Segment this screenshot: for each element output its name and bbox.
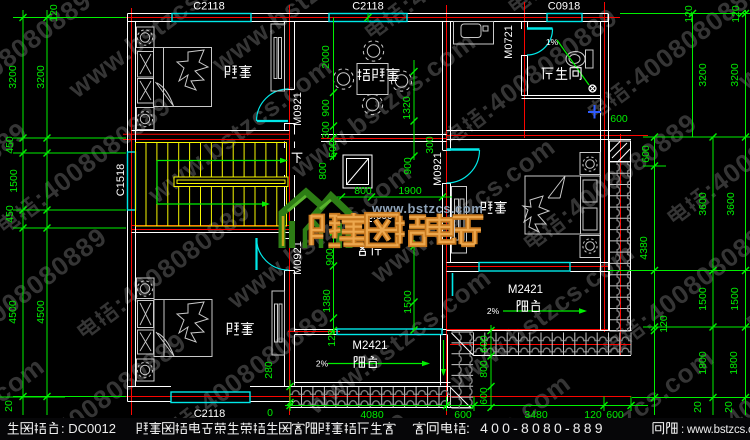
svg-text:C1518: C1518 bbox=[115, 164, 127, 196]
svg-text:C2118: C2118 bbox=[352, 1, 384, 13]
svg-text:600: 600 bbox=[478, 387, 490, 405]
svg-text:4380: 4380 bbox=[638, 236, 650, 260]
svg-text:1800: 1800 bbox=[697, 351, 709, 375]
svg-text:4500: 4500 bbox=[7, 300, 19, 324]
svg-text:900: 900 bbox=[324, 248, 336, 266]
svg-text:3200: 3200 bbox=[729, 63, 741, 87]
svg-text:2000: 2000 bbox=[320, 45, 332, 69]
svg-text:: www.bstzcs.com: : www.bstzcs.com bbox=[681, 424, 750, 436]
svg-text:800: 800 bbox=[354, 185, 372, 197]
svg-text:120: 120 bbox=[326, 329, 338, 347]
svg-text:800: 800 bbox=[317, 162, 329, 180]
svg-text:0: 0 bbox=[267, 407, 273, 419]
svg-text:120: 120 bbox=[730, 5, 742, 23]
svg-text:1380: 1380 bbox=[321, 289, 333, 313]
svg-text:3200: 3200 bbox=[697, 63, 709, 87]
svg-text:C0918: C0918 bbox=[548, 1, 580, 13]
svg-text:800: 800 bbox=[478, 360, 490, 378]
svg-text:M0721: M0721 bbox=[503, 25, 515, 59]
svg-text:500: 500 bbox=[327, 140, 339, 158]
svg-text:900: 900 bbox=[320, 99, 332, 117]
svg-text:120: 120 bbox=[658, 315, 670, 333]
svg-text:1500: 1500 bbox=[402, 290, 414, 314]
svg-text:20: 20 bbox=[723, 401, 735, 413]
svg-text:C2118: C2118 bbox=[193, 1, 225, 13]
svg-text:120: 120 bbox=[683, 5, 695, 23]
svg-text:450: 450 bbox=[4, 205, 16, 223]
svg-text:M2421: M2421 bbox=[352, 340, 387, 352]
svg-text:: DC0012: : DC0012 bbox=[61, 421, 116, 436]
svg-text:600: 600 bbox=[610, 113, 628, 125]
svg-text:M2421: M2421 bbox=[508, 284, 543, 296]
svg-text:20: 20 bbox=[692, 401, 704, 413]
svg-text:M0921: M0921 bbox=[292, 92, 304, 126]
svg-text:1500: 1500 bbox=[697, 287, 709, 311]
svg-text:3600: 3600 bbox=[725, 192, 737, 216]
svg-text:1900: 1900 bbox=[398, 185, 422, 197]
svg-text:2%: 2% bbox=[487, 306, 500, 316]
svg-text:450: 450 bbox=[4, 136, 16, 154]
svg-text:1320: 1320 bbox=[401, 96, 413, 120]
svg-text:1500: 1500 bbox=[8, 169, 20, 193]
svg-text:300: 300 bbox=[320, 121, 332, 139]
svg-text:600: 600 bbox=[478, 335, 490, 353]
svg-text:1500: 1500 bbox=[729, 287, 741, 311]
svg-text:900: 900 bbox=[402, 157, 414, 175]
svg-text:280: 280 bbox=[263, 361, 275, 379]
svg-text:M0921: M0921 bbox=[432, 152, 444, 186]
svg-text:300: 300 bbox=[424, 136, 436, 154]
svg-text:1800: 1800 bbox=[728, 351, 740, 375]
svg-text:600: 600 bbox=[640, 145, 652, 163]
svg-text:3600: 3600 bbox=[697, 192, 709, 216]
svg-text:1%: 1% bbox=[546, 37, 559, 47]
svg-text:20: 20 bbox=[3, 400, 15, 412]
svg-text:3200: 3200 bbox=[7, 65, 19, 89]
svg-text:: 400-8080-889: : 400-8080-889 bbox=[466, 420, 606, 436]
svg-text:4500: 4500 bbox=[35, 300, 47, 324]
svg-text:2%: 2% bbox=[316, 359, 329, 369]
svg-text:3200: 3200 bbox=[35, 65, 47, 89]
svg-text:120: 120 bbox=[48, 4, 60, 22]
